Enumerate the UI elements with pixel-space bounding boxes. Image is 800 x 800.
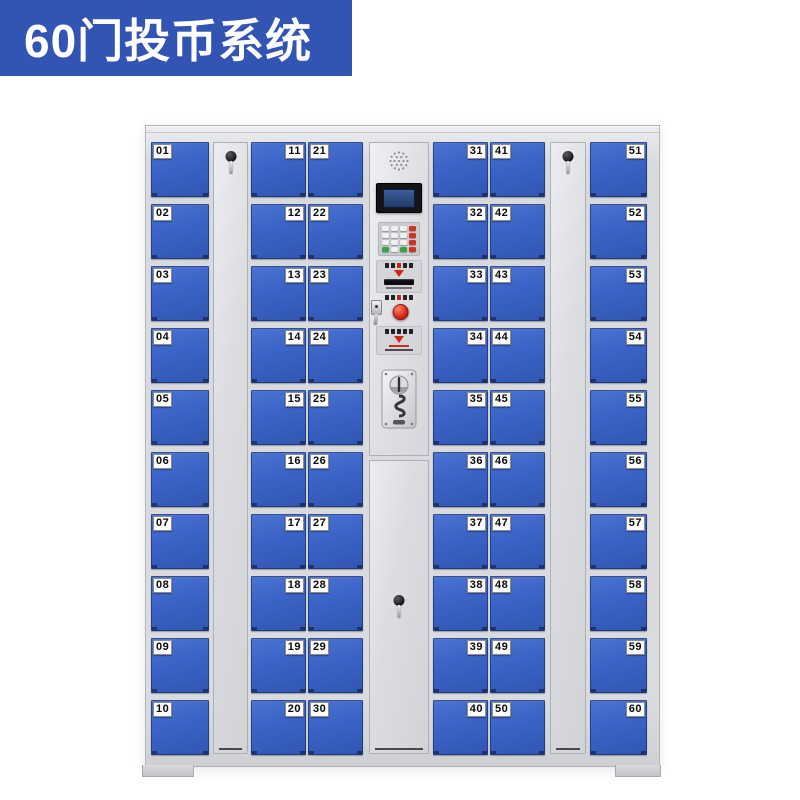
lcd-display-area bbox=[383, 189, 415, 208]
door-number-label: 31 bbox=[467, 144, 486, 159]
side-tall-door-left bbox=[213, 142, 248, 754]
door-number-label: 01 bbox=[153, 144, 172, 159]
keypad-key-red bbox=[409, 240, 416, 245]
keypad-key-red bbox=[409, 233, 416, 238]
door-number-label: 26 bbox=[310, 454, 329, 469]
locker-door-25: 25 bbox=[308, 390, 363, 445]
key-lock-icon bbox=[563, 151, 574, 162]
door-number-label: 37 bbox=[467, 516, 486, 531]
door-number-label: 49 bbox=[492, 640, 511, 655]
keypad-key-red bbox=[409, 226, 416, 231]
banner-title: 60门投币系统 bbox=[24, 5, 312, 71]
door-number-label: 19 bbox=[285, 640, 304, 655]
locker-door-29: 29 bbox=[308, 638, 363, 693]
keypad-key-red bbox=[409, 247, 416, 252]
door-number-label: 60 bbox=[626, 702, 645, 717]
door-number-label: 56 bbox=[626, 454, 645, 469]
door-number-label: 08 bbox=[153, 578, 172, 593]
instruction-panel bbox=[376, 326, 422, 355]
emergency-red-button bbox=[393, 304, 409, 320]
control-panel bbox=[369, 142, 429, 456]
door-number-label: 22 bbox=[310, 206, 329, 221]
door-number-label: 13 bbox=[285, 268, 304, 283]
instruction-glyphs bbox=[377, 329, 421, 334]
door-number-label: 27 bbox=[310, 516, 329, 531]
locker-door-48: 48 bbox=[490, 576, 545, 631]
door-number-label: 59 bbox=[626, 640, 645, 655]
locker-door-15: 15 bbox=[251, 390, 306, 445]
title-banner: 60门投币系统 bbox=[0, 0, 352, 76]
locker-door-39: 39 bbox=[433, 638, 488, 693]
card-slot bbox=[384, 279, 414, 285]
door-number-label: 42 bbox=[492, 206, 511, 221]
locker-door-27: 27 bbox=[308, 514, 363, 569]
locker-door-37: 37 bbox=[433, 514, 488, 569]
door-number-label: 09 bbox=[153, 640, 172, 655]
door-number-label: 12 bbox=[285, 206, 304, 221]
cabinet-foot-right bbox=[615, 765, 661, 777]
down-arrow-icon bbox=[394, 336, 404, 343]
locker-door-26: 26 bbox=[308, 452, 363, 507]
dark-text-line bbox=[385, 349, 413, 351]
locker-door-35: 35 bbox=[433, 390, 488, 445]
door-number-label: 23 bbox=[310, 268, 329, 283]
locker-door-10: 10 bbox=[151, 700, 209, 755]
locker-door-14: 14 bbox=[251, 328, 306, 383]
door-number-label: 44 bbox=[492, 330, 511, 345]
locker-door-53: 53 bbox=[590, 266, 647, 321]
locker-column-01-10: 01020304050607080910 bbox=[151, 126, 209, 766]
locker-door-60: 60 bbox=[590, 700, 647, 755]
locker-door-43: 43 bbox=[490, 266, 545, 321]
master-key-lock-icon bbox=[371, 300, 382, 315]
door-number-label: 40 bbox=[467, 702, 486, 717]
door-number-label: 16 bbox=[285, 454, 304, 469]
coin-acceptor bbox=[381, 369, 417, 429]
door-number-label: 04 bbox=[153, 330, 172, 345]
keypad-key bbox=[400, 226, 407, 231]
door-number-label: 53 bbox=[626, 268, 645, 283]
door-number-label: 58 bbox=[626, 578, 645, 593]
locker-door-04: 04 bbox=[151, 328, 209, 383]
locker-cabinet: 01020304050607080910 1112131415161718192… bbox=[145, 125, 660, 767]
keypad-key bbox=[391, 247, 398, 252]
keypad-key bbox=[391, 226, 398, 231]
locker-door-16: 16 bbox=[251, 452, 306, 507]
coin-slot bbox=[398, 377, 400, 392]
locker-column-41-50: 41424344454647484950 bbox=[490, 126, 545, 766]
locker-door-49: 49 bbox=[490, 638, 545, 693]
side-column-left bbox=[213, 126, 248, 766]
door-number-label: 46 bbox=[492, 454, 511, 469]
door-number-label: 29 bbox=[310, 640, 329, 655]
locker-door-47: 47 bbox=[490, 514, 545, 569]
keypad-key bbox=[391, 233, 398, 238]
keypad-key-green bbox=[400, 247, 407, 252]
door-number-label: 39 bbox=[467, 640, 486, 655]
down-arrow-icon bbox=[394, 270, 404, 277]
locker-door-05: 05 bbox=[151, 390, 209, 445]
locker-door-28: 28 bbox=[308, 576, 363, 631]
door-number-label: 03 bbox=[153, 268, 172, 283]
door-number-label: 48 bbox=[492, 578, 511, 593]
keypad-key bbox=[400, 233, 407, 238]
locker-door-08: 08 bbox=[151, 576, 209, 631]
door-number-label: 54 bbox=[626, 330, 645, 345]
door-number-label: 05 bbox=[153, 392, 172, 407]
lcd-screen bbox=[376, 183, 422, 213]
locker-door-33: 33 bbox=[433, 266, 488, 321]
door-number-label: 11 bbox=[285, 144, 304, 159]
door-number-label: 41 bbox=[492, 144, 511, 159]
door-number-label: 43 bbox=[492, 268, 511, 283]
product-photo: 60门投币系统 01020304050607080910 11121314151… bbox=[0, 0, 800, 800]
locker-door-56: 56 bbox=[590, 452, 647, 507]
instruction-glyphs bbox=[377, 263, 421, 268]
door-number-label: 20 bbox=[285, 702, 304, 717]
locker-door-50: 50 bbox=[490, 700, 545, 755]
key-lock-icon bbox=[225, 151, 236, 162]
door-number-label: 24 bbox=[310, 330, 329, 345]
locker-door-07: 07 bbox=[151, 514, 209, 569]
keypad-key bbox=[400, 240, 407, 245]
locker-door-03: 03 bbox=[151, 266, 209, 321]
card-slot-panel bbox=[376, 260, 422, 293]
door-number-label: 52 bbox=[626, 206, 645, 221]
door-number-label: 45 bbox=[492, 392, 511, 407]
door-number-label: 21 bbox=[310, 144, 329, 159]
door-number-label: 36 bbox=[467, 454, 486, 469]
door-number-label: 17 bbox=[285, 516, 304, 531]
door-number-label: 07 bbox=[153, 516, 172, 531]
locker-door-54: 54 bbox=[590, 328, 647, 383]
keypad-key bbox=[382, 240, 389, 245]
locker-column-51-60: 51525354555657585960 bbox=[590, 126, 647, 766]
locker-door-40: 40 bbox=[433, 700, 488, 755]
keypad-key bbox=[382, 226, 389, 231]
door-number-label: 02 bbox=[153, 206, 172, 221]
door-number-label: 35 bbox=[467, 392, 486, 407]
locker-door-41: 41 bbox=[490, 142, 545, 197]
keypad-key bbox=[382, 233, 389, 238]
locker-door-18: 18 bbox=[251, 576, 306, 631]
door-number-label: 57 bbox=[626, 516, 645, 531]
door-number-label: 28 bbox=[310, 578, 329, 593]
door-number-label: 51 bbox=[626, 144, 645, 159]
speaker-grille-icon bbox=[386, 148, 412, 174]
locker-door-21: 21 bbox=[308, 142, 363, 197]
locker-door-19: 19 bbox=[251, 638, 306, 693]
key-lock-icon bbox=[394, 595, 405, 606]
locker-door-45: 45 bbox=[490, 390, 545, 445]
door-number-label: 25 bbox=[310, 392, 329, 407]
door-number-label: 50 bbox=[492, 702, 511, 717]
locker-door-30: 30 bbox=[308, 700, 363, 755]
door-number-label: 06 bbox=[153, 454, 172, 469]
locker-door-46: 46 bbox=[490, 452, 545, 507]
locker-door-44: 44 bbox=[490, 328, 545, 383]
door-number-label: 32 bbox=[467, 206, 486, 221]
cabinet-foot-left bbox=[142, 765, 194, 777]
keypad-key bbox=[391, 240, 398, 245]
keypad-key-green bbox=[382, 247, 389, 252]
locker-door-38: 38 bbox=[433, 576, 488, 631]
locker-door-55: 55 bbox=[590, 390, 647, 445]
locker-door-58: 58 bbox=[590, 576, 647, 631]
center-service-door bbox=[369, 460, 429, 754]
locker-door-12: 12 bbox=[251, 204, 306, 259]
locker-door-09: 09 bbox=[151, 638, 209, 693]
locker-door-13: 13 bbox=[251, 266, 306, 321]
locker-column-21-30: 21222324252627282930 bbox=[308, 126, 363, 766]
numeric-keypad bbox=[378, 222, 420, 256]
locker-door-11: 11 bbox=[251, 142, 306, 197]
fine-print-line bbox=[386, 287, 412, 289]
door-number-label: 15 bbox=[285, 392, 304, 407]
locker-door-31: 31 bbox=[433, 142, 488, 197]
coin-return-button bbox=[393, 420, 405, 425]
emergency-section bbox=[370, 295, 428, 327]
locker-door-23: 23 bbox=[308, 266, 363, 321]
locker-column-11-20: 11121314151617181920 bbox=[251, 126, 306, 766]
door-number-label: 30 bbox=[310, 702, 329, 717]
locker-door-06: 06 bbox=[151, 452, 209, 507]
locker-door-34: 34 bbox=[433, 328, 488, 383]
locker-door-42: 42 bbox=[490, 204, 545, 259]
door-number-label: 10 bbox=[153, 702, 172, 717]
locker-door-57: 57 bbox=[590, 514, 647, 569]
locker-door-17: 17 bbox=[251, 514, 306, 569]
locker-door-59: 59 bbox=[590, 638, 647, 693]
door-number-label: 34 bbox=[467, 330, 486, 345]
locker-column-31-40: 31323334353637383940 bbox=[433, 126, 488, 766]
locker-door-20: 20 bbox=[251, 700, 306, 755]
door-number-label: 38 bbox=[467, 578, 486, 593]
door-number-label: 18 bbox=[285, 578, 304, 593]
locker-door-32: 32 bbox=[433, 204, 488, 259]
locker-door-52: 52 bbox=[590, 204, 647, 259]
door-number-label: 47 bbox=[492, 516, 511, 531]
locker-door-51: 51 bbox=[590, 142, 647, 197]
control-column bbox=[369, 126, 429, 766]
side-column-right bbox=[550, 126, 586, 766]
locker-door-22: 22 bbox=[308, 204, 363, 259]
side-tall-door-right bbox=[550, 142, 586, 754]
door-number-label: 33 bbox=[467, 268, 486, 283]
locker-door-36: 36 bbox=[433, 452, 488, 507]
door-number-label: 55 bbox=[626, 392, 645, 407]
locker-door-01: 01 bbox=[151, 142, 209, 197]
door-number-label: 14 bbox=[285, 330, 304, 345]
red-text-line bbox=[389, 345, 409, 347]
locker-door-24: 24 bbox=[308, 328, 363, 383]
locker-door-02: 02 bbox=[151, 204, 209, 259]
